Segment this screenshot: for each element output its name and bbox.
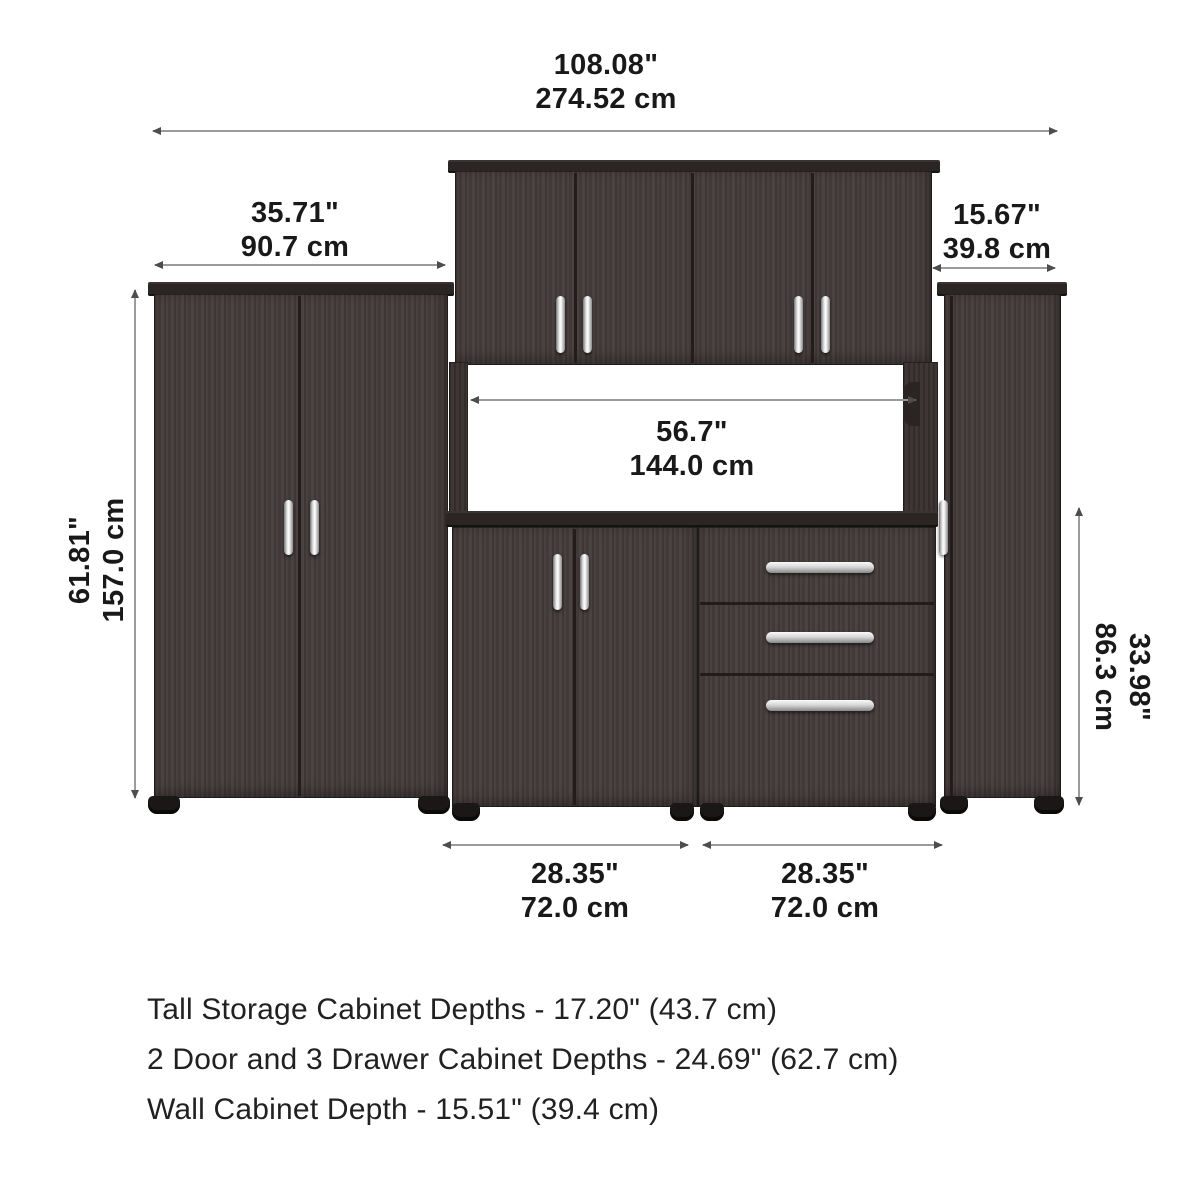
- leveling-foot: [670, 803, 694, 821]
- dim-line-base-right-width: [703, 844, 942, 846]
- dim-base-height-inches: 33.98": [1122, 577, 1156, 777]
- drawer-gap: [700, 602, 934, 605]
- wall-cabinet-door-gap: [574, 173, 577, 363]
- dim-label-middle-opening-width: 56.7" 144.0 cm: [542, 415, 842, 483]
- dim-line-middle-opening-width: [471, 399, 916, 401]
- wall-cabinet-door-gap: [811, 173, 814, 363]
- leveling-foot: [700, 803, 724, 821]
- door-handle: [939, 500, 948, 555]
- dim-middle-width-cm: 144.0 cm: [542, 449, 842, 483]
- dim-tall-height-inches: 61.81": [63, 460, 97, 660]
- leveling-foot: [1034, 796, 1064, 814]
- dim-label-left-cabinet-width: 35.71" 90.7 cm: [145, 196, 445, 264]
- leveling-foot: [940, 796, 968, 814]
- drawer-gap: [700, 673, 934, 676]
- door-handle: [310, 500, 319, 555]
- dim-label-tall-cabinet-height: 61.81" 157.0 cm: [63, 460, 131, 660]
- left-tall-cabinet-door-gap: [298, 296, 301, 796]
- right-tall-cabinet: [944, 294, 1061, 798]
- dim-line-left-cabinet-width: [155, 264, 445, 266]
- door-handle: [794, 296, 803, 353]
- right-tall-cabinet-door-gap: [950, 296, 953, 796]
- dim-line-overall-width: [153, 130, 1057, 132]
- base-countertop: [446, 511, 938, 527]
- dim-overall-width-cm: 274.52 cm: [456, 82, 756, 116]
- door-handle: [553, 554, 562, 610]
- door-handle: [583, 296, 592, 353]
- leveling-foot: [452, 803, 480, 821]
- drawer-handle: [766, 632, 874, 643]
- dim-base-height-cm: 86.3 cm: [1088, 577, 1122, 777]
- leveling-foot: [148, 796, 180, 814]
- depth-notes: Tall Storage Cabinet Depths - 17.20" (43…: [147, 985, 899, 1135]
- door-handle: [284, 500, 293, 555]
- depth-note-tall-cabinets: Tall Storage Cabinet Depths - 17.20" (43…: [147, 985, 899, 1035]
- dim-left-width-cm: 90.7 cm: [145, 230, 445, 264]
- dim-label-base-cabinet-height: 33.98" 86.3 cm: [1088, 577, 1156, 777]
- left-tall-cabinet: [154, 294, 448, 798]
- leveling-foot: [908, 803, 936, 821]
- dim-tall-height-cm: 157.0 cm: [97, 460, 131, 660]
- dim-line-base-left-width: [443, 844, 688, 846]
- product-dimension-diagram: 108.08" 274.52 cm 35.71" 90.7 cm 15.67" …: [0, 0, 1200, 1200]
- dim-middle-width-inches: 56.7": [542, 415, 842, 449]
- door-handle: [556, 296, 565, 353]
- drawer-handle: [766, 700, 874, 711]
- base-door-cabinet: [452, 527, 698, 807]
- leveling-foot: [418, 796, 450, 814]
- wall-cabinet: [455, 171, 932, 365]
- dim-base-right-inches: 28.35": [675, 857, 975, 891]
- dim-label-base-right-width: 28.35" 72.0 cm: [675, 857, 975, 925]
- door-handle: [821, 296, 830, 353]
- dim-overall-width-inches: 108.08": [456, 48, 756, 82]
- door-handle: [580, 554, 589, 610]
- dim-base-right-cm: 72.0 cm: [675, 891, 975, 925]
- wall-cabinet-door-gap: [691, 173, 694, 363]
- dim-label-overall-width: 108.08" 274.52 cm: [456, 48, 756, 116]
- wall-hook: [903, 382, 920, 426]
- dim-line-base-cabinet-height: [1078, 508, 1080, 805]
- dim-label-right-cabinet-width: 15.67" 39.8 cm: [872, 198, 1122, 266]
- base-door-cabinet-door-gap: [573, 529, 576, 805]
- depth-note-wall-cabinet: Wall Cabinet Depth - 15.51" (39.4 cm): [147, 1085, 899, 1135]
- drawer-handle: [766, 562, 874, 573]
- dim-left-width-inches: 35.71": [145, 196, 445, 230]
- dim-line-right-cabinet-width: [933, 267, 1055, 269]
- dim-line-tall-cabinet-height: [134, 290, 136, 798]
- opening-left-side-panel: [449, 362, 468, 515]
- depth-note-base-cabinets: 2 Door and 3 Drawer Cabinet Depths - 24.…: [147, 1035, 899, 1085]
- dim-right-width-cm: 39.8 cm: [872, 232, 1122, 266]
- dim-right-width-inches: 15.67": [872, 198, 1122, 232]
